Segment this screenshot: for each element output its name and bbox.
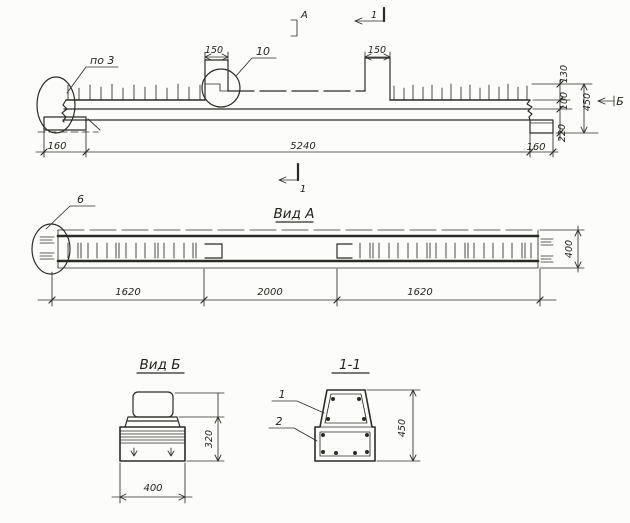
view-b: Вид Б 320 400 [112, 357, 224, 503]
dim-console-right: 150 [368, 45, 386, 56]
drawing-sheet: по 3 10 150 150 160 5240 160 130 [0, 0, 630, 523]
elevation-view: по 3 10 150 150 160 5240 160 130 [36, 8, 624, 195]
view-a: Вид А 6 1620 2000 1620 [32, 193, 584, 306]
dim-upper: 100 [559, 92, 570, 110]
detail-label-10: 10 [256, 45, 270, 58]
dim-height-320: 320 [204, 430, 215, 448]
view-b-body [120, 392, 185, 461]
view-a-title: Вид А [274, 206, 315, 222]
dim-outstand: 130 [559, 65, 570, 83]
dim-total-height: 450 [582, 93, 593, 111]
dim-segment-left: 1620 [115, 287, 140, 298]
view-b-title: Вид Б [140, 357, 181, 373]
height-dimension-chain: 130 100 220 450 [532, 65, 598, 142]
section-mark-top-label: 1 [371, 10, 377, 21]
view-b-direction-mark: Б [598, 95, 624, 108]
section-line-mark-bottom: 1 [279, 164, 306, 195]
dim-console-left: 150 [205, 45, 223, 56]
view-a-direction-mark: А [291, 10, 308, 36]
section-line-mark-top: 1 [355, 8, 384, 24]
console-dimensions: 150 150 [205, 45, 390, 62]
column-outline [38, 58, 553, 133]
detail-callout-end: по 3 [37, 54, 118, 133]
dim-segment-right: 1620 [407, 287, 432, 298]
view-a-width-dimension: 400 [540, 226, 584, 272]
section-mark-bottom-label: 1 [300, 184, 306, 195]
dim-end-right: 160 [526, 142, 545, 153]
detail-label-po3: по 3 [90, 54, 114, 67]
end-stamp-marks [40, 237, 553, 262]
callout-label-2: 2 [276, 415, 283, 428]
view-b-width-dimension: 400 [112, 463, 192, 503]
dim-end-left: 160 [47, 141, 66, 152]
callout-label-1: 1 [279, 388, 286, 401]
detail-label-6: 6 [77, 193, 84, 206]
dim-height-450: 450 [397, 419, 408, 437]
dim-width-400: 400 [564, 240, 575, 258]
section-1-1: 1-1 1 2 450 [269, 357, 420, 461]
dim-span: 5240 [290, 141, 315, 152]
section-title: 1-1 [339, 357, 361, 373]
view-a-dimension-line: 1620 2000 1620 [38, 269, 556, 306]
dim-segment-middle: 2000 [257, 287, 282, 298]
view-a-body [58, 230, 538, 268]
technical-drawing: по 3 10 150 150 160 5240 160 130 [0, 0, 630, 523]
dim-lower: 220 [557, 124, 568, 142]
view-mark-a-label: А [300, 10, 308, 21]
length-dimension-line: 160 5240 160 [36, 131, 558, 157]
dim-width-400b: 400 [143, 483, 162, 494]
view-mark-b-label: Б [616, 95, 624, 108]
rebar-outstand-ticks [68, 84, 527, 100]
